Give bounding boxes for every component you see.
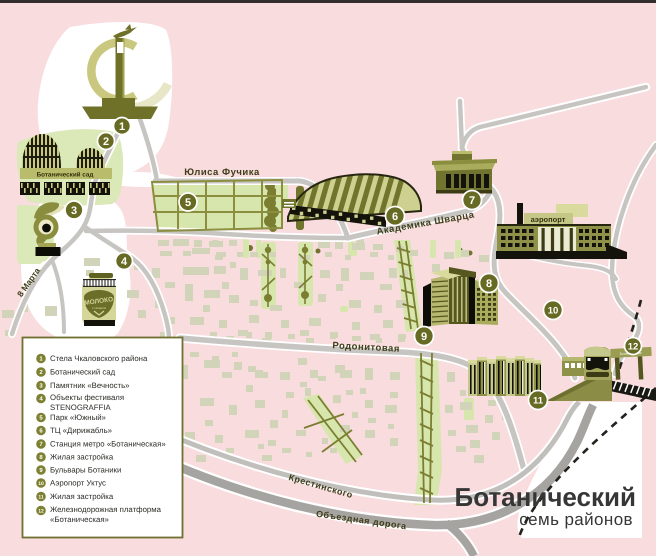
svg-text:10: 10 — [38, 481, 44, 487]
svg-text:11: 11 — [533, 395, 544, 406]
svg-text:«Ботаническая»: «Ботаническая» — [50, 515, 110, 524]
svg-text:Объекты фестиваля: Объекты фестиваля — [50, 393, 124, 402]
svg-text:STENOGRAFFIA: STENOGRAFFIA — [50, 403, 111, 412]
svg-text:Стела Чкаловского района: Стела Чкаловского района — [50, 354, 148, 363]
svg-text:11: 11 — [38, 495, 44, 501]
svg-text:3: 3 — [71, 205, 77, 217]
svg-text:семь районов: семь районов — [519, 510, 633, 529]
svg-text:12: 12 — [38, 509, 44, 515]
svg-text:10: 10 — [548, 305, 559, 316]
svg-text:Аэропорт Уктус: Аэропорт Уктус — [50, 479, 106, 488]
svg-text:аэропорт: аэропорт — [531, 215, 566, 224]
svg-text:9: 9 — [421, 331, 427, 343]
svg-text:7: 7 — [469, 195, 475, 207]
svg-text:8: 8 — [486, 278, 492, 290]
svg-text:Парк «Южный»: Парк «Южный» — [50, 413, 107, 422]
svg-text:Юлиса Фучика: Юлиса Фучика — [184, 167, 260, 178]
svg-text:Ботанический сад: Ботанический сад — [37, 171, 94, 178]
svg-text:с сахаром: с сахаром — [92, 306, 106, 310]
svg-text:Ботанический: Ботанический — [455, 482, 636, 512]
svg-text:Ботанический сад: Ботанический сад — [50, 368, 116, 377]
svg-text:6: 6 — [392, 211, 398, 223]
svg-text:ТЦ «Дирижабль»: ТЦ «Дирижабль» — [50, 426, 113, 435]
svg-text:1: 1 — [119, 121, 125, 133]
svg-text:Железнодорожная платформа: Железнодорожная платформа — [50, 505, 162, 514]
svg-text:Жилая застройка: Жилая застройка — [50, 492, 114, 501]
svg-text:2: 2 — [103, 136, 109, 148]
svg-text:Памятник «Вечность»: Памятник «Вечность» — [50, 381, 130, 390]
svg-text:5: 5 — [185, 197, 191, 209]
svg-text:12: 12 — [628, 341, 639, 352]
svg-text:Станция метро «Ботаническая»: Станция метро «Ботаническая» — [50, 440, 166, 449]
svg-text:4: 4 — [121, 256, 128, 268]
svg-text:Бульвары Ботаники: Бульвары Ботаники — [50, 466, 121, 475]
svg-text:Жилая застройка: Жилая застройка — [50, 453, 114, 462]
